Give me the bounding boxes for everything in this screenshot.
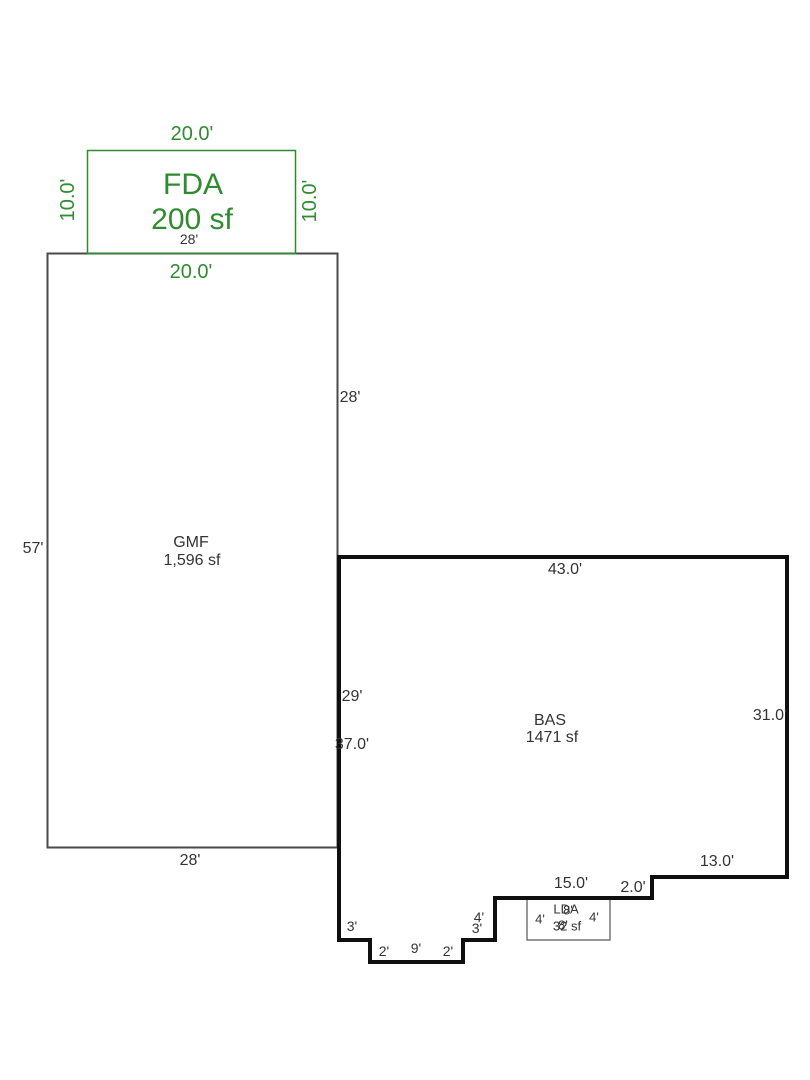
lda-code-label: LDA xyxy=(553,903,578,916)
bas-dim-step-mid-h: 3' xyxy=(472,921,482,935)
bas-dim-notch-bottom: 9' xyxy=(411,941,421,955)
bas-dim-notch-left-h: 3' xyxy=(347,919,357,933)
fda-dim-bottom: 20.0' xyxy=(170,262,213,282)
bas-dim-notch-left-v: 2' xyxy=(379,944,389,958)
bas-dim-bottom-right: 13.0' xyxy=(700,854,734,870)
gmf-code-label: GMF xyxy=(173,535,209,551)
fda-code-label: FDA xyxy=(163,170,223,200)
property-sketch: 20.0' 10.0' 10.0' FDA 200 sf 20.0' 28' 2… xyxy=(0,0,810,1080)
sketch-shapes xyxy=(0,0,810,1080)
bas-area-label: 1471 sf xyxy=(526,730,578,746)
gmf-dim-right-upper: 28' xyxy=(340,390,361,406)
bas-dim-left: 37.0' xyxy=(335,737,369,753)
bas-dim-top: 43.0' xyxy=(548,562,582,578)
gmf-dim-bottom: 28' xyxy=(180,853,201,869)
bas-dim-right: 31.0' xyxy=(753,708,787,724)
fda-dim-top: 20.0' xyxy=(171,124,214,144)
gmf-dim-left: 57' xyxy=(23,541,44,557)
gmf-dim-top: 28' xyxy=(180,232,198,246)
lda-dim-right: 4' xyxy=(589,911,599,924)
gmf-area-label: 1,596 sf xyxy=(164,553,221,569)
lda-area-label: 32 sf xyxy=(553,920,581,933)
fda-dim-left: 10.0' xyxy=(58,179,78,222)
bas-dim-step-right: 2.0' xyxy=(620,880,645,896)
bas-code-label: BAS xyxy=(534,713,566,729)
bas-dim-notch-right-v: 2' xyxy=(443,944,453,958)
gmf-dim-right-lower: 29' xyxy=(342,689,363,705)
bas-dim-bottom-mid: 15.0' xyxy=(554,876,588,892)
lda-dim-left: 4' xyxy=(535,913,545,926)
fda-dim-right: 10.0' xyxy=(300,180,320,223)
